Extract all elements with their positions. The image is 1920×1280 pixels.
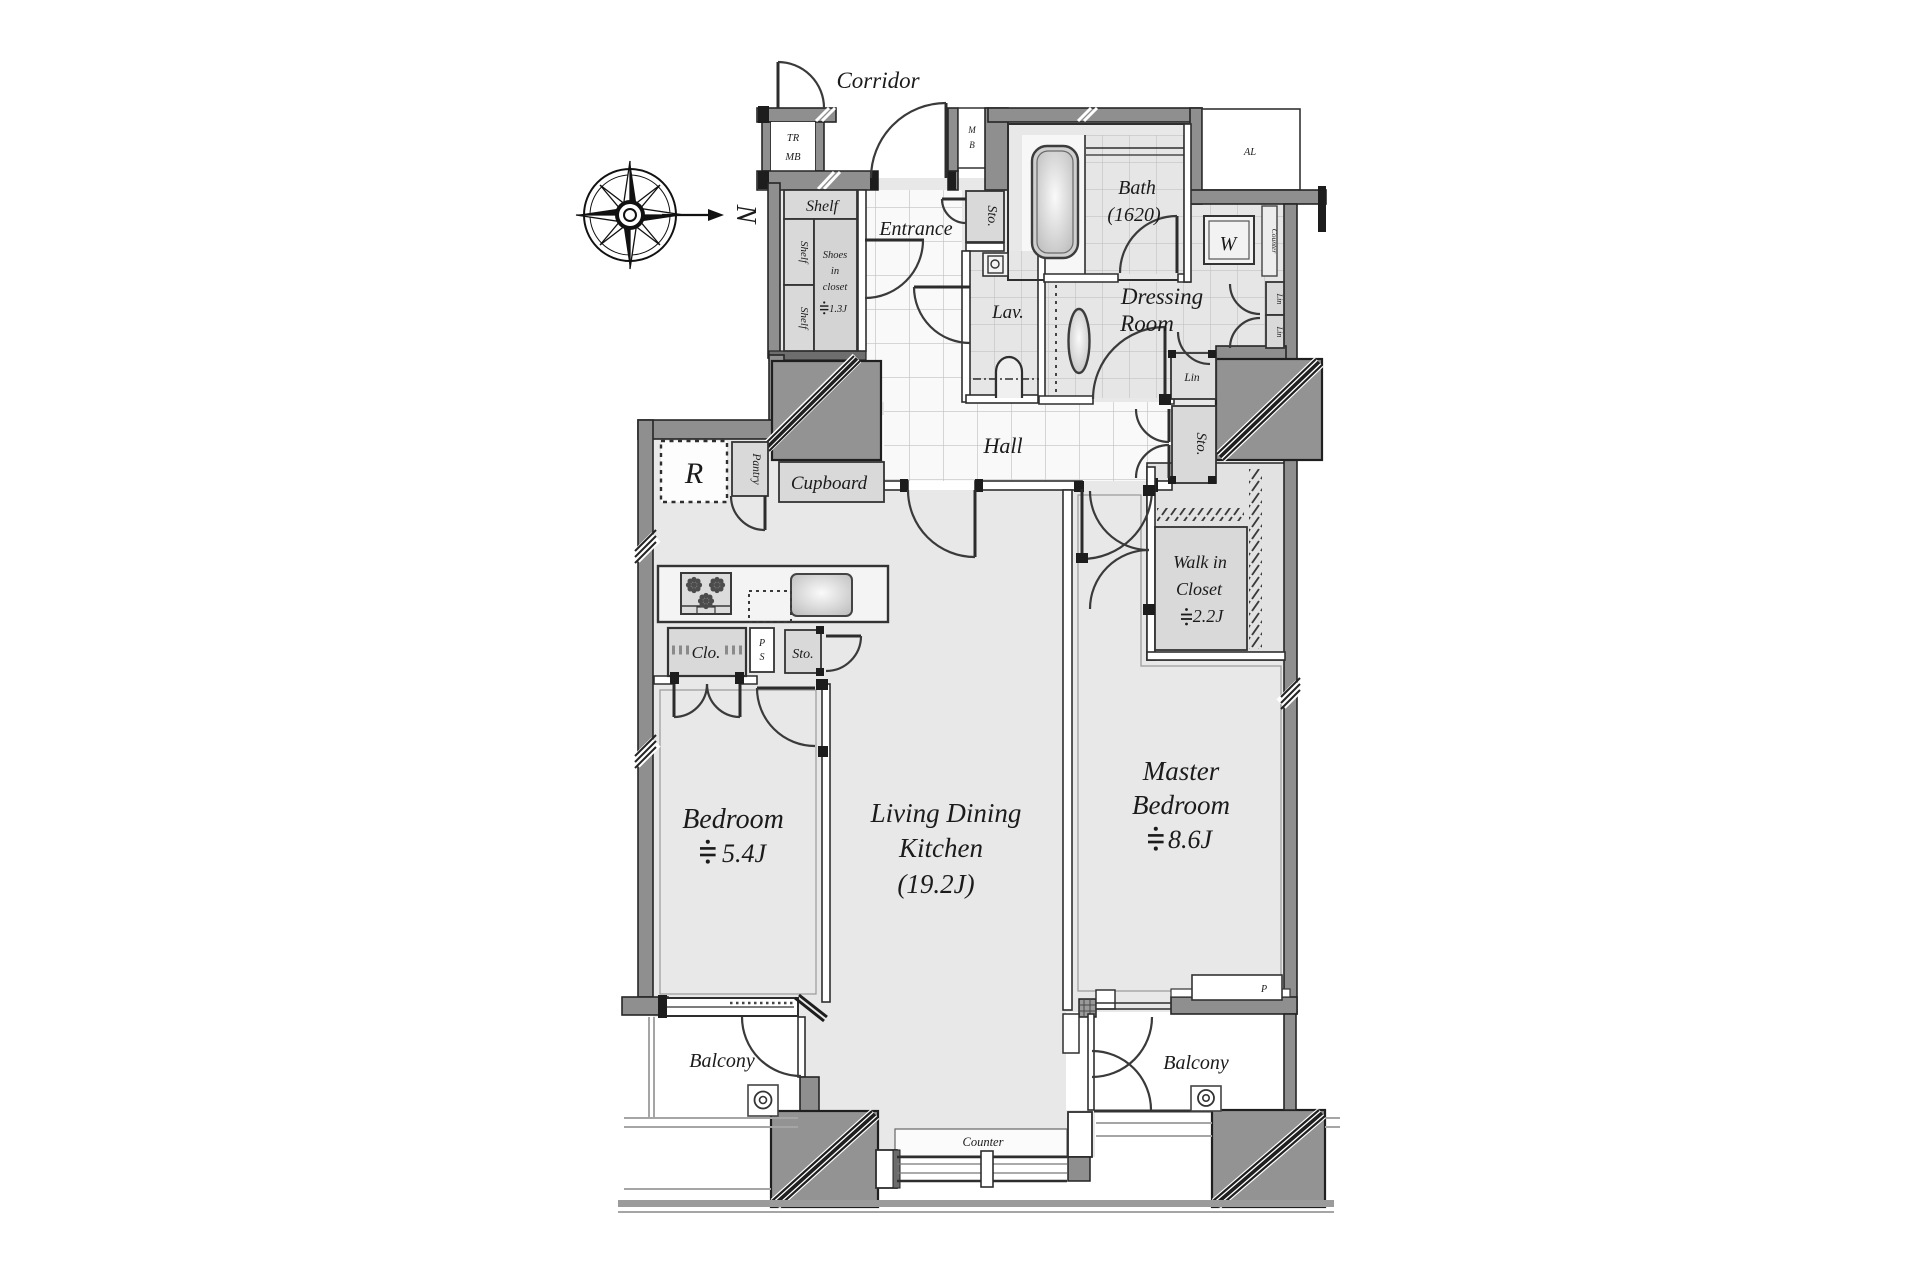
- svg-text:S: S: [760, 652, 765, 663]
- svg-text:Balcony: Balcony: [1163, 1052, 1229, 1074]
- svg-text:M: M: [967, 125, 976, 135]
- svg-text:Entrance: Entrance: [878, 218, 952, 240]
- svg-text:Shelf: Shelf: [798, 241, 810, 265]
- svg-text:Counter: Counter: [963, 1135, 1004, 1149]
- svg-text:closet: closet: [823, 282, 849, 293]
- svg-text:Pantry: Pantry: [750, 452, 762, 485]
- svg-text:B: B: [969, 140, 975, 150]
- svg-text:N: N: [730, 204, 761, 225]
- svg-text:Dressing: Dressing: [1120, 284, 1203, 309]
- svg-text:Clo.: Clo.: [692, 643, 721, 662]
- svg-text:Living Dining: Living Dining: [870, 798, 1022, 828]
- svg-text:TR: TR: [787, 133, 800, 144]
- svg-text:P: P: [1260, 984, 1267, 995]
- svg-text:Counter: Counter: [1270, 229, 1279, 254]
- svg-text:Bedroom: Bedroom: [1132, 790, 1230, 820]
- svg-text:(19.2J): (19.2J): [897, 869, 974, 899]
- svg-text:Balcony: Balcony: [689, 1050, 755, 1072]
- svg-text:Lin: Lin: [1275, 293, 1284, 305]
- svg-text:Closet: Closet: [1176, 579, 1223, 599]
- svg-text:Shelf: Shelf: [806, 198, 841, 215]
- svg-text:Bedroom: Bedroom: [682, 804, 784, 835]
- svg-text:2.2J: 2.2J: [1193, 606, 1225, 626]
- svg-text:Lin: Lin: [1183, 372, 1200, 384]
- svg-text:Lav.: Lav.: [991, 302, 1024, 323]
- svg-text:Kitchen: Kitchen: [898, 833, 983, 863]
- svg-text:in: in: [831, 266, 839, 277]
- svg-text:AL: AL: [1243, 147, 1256, 158]
- svg-text:Sto.: Sto.: [1193, 433, 1209, 456]
- svg-text:Hall: Hall: [982, 433, 1022, 458]
- svg-text:P: P: [758, 638, 765, 649]
- svg-text:R: R: [684, 457, 703, 490]
- svg-text:Sto.: Sto.: [792, 647, 813, 662]
- svg-text:5.4J: 5.4J: [722, 839, 768, 868]
- svg-text:Lin: Lin: [1275, 326, 1284, 338]
- svg-text:8.6J: 8.6J: [1168, 825, 1214, 854]
- svg-text:Shoes: Shoes: [823, 250, 848, 261]
- svg-text:Corridor: Corridor: [836, 68, 920, 93]
- svg-text:Walk in: Walk in: [1173, 552, 1227, 572]
- svg-text:Cupboard: Cupboard: [791, 473, 868, 494]
- svg-text:Master: Master: [1142, 756, 1220, 786]
- svg-text:Bath: Bath: [1118, 177, 1156, 199]
- svg-text:W: W: [1220, 233, 1239, 255]
- svg-text:MB: MB: [784, 152, 801, 163]
- svg-text:1.3J: 1.3J: [829, 304, 848, 315]
- svg-text:Room: Room: [1119, 311, 1174, 336]
- svg-text:Sto.: Sto.: [984, 205, 999, 226]
- svg-text:Shelf: Shelf: [798, 307, 810, 331]
- svg-text:(1620): (1620): [1107, 204, 1161, 226]
